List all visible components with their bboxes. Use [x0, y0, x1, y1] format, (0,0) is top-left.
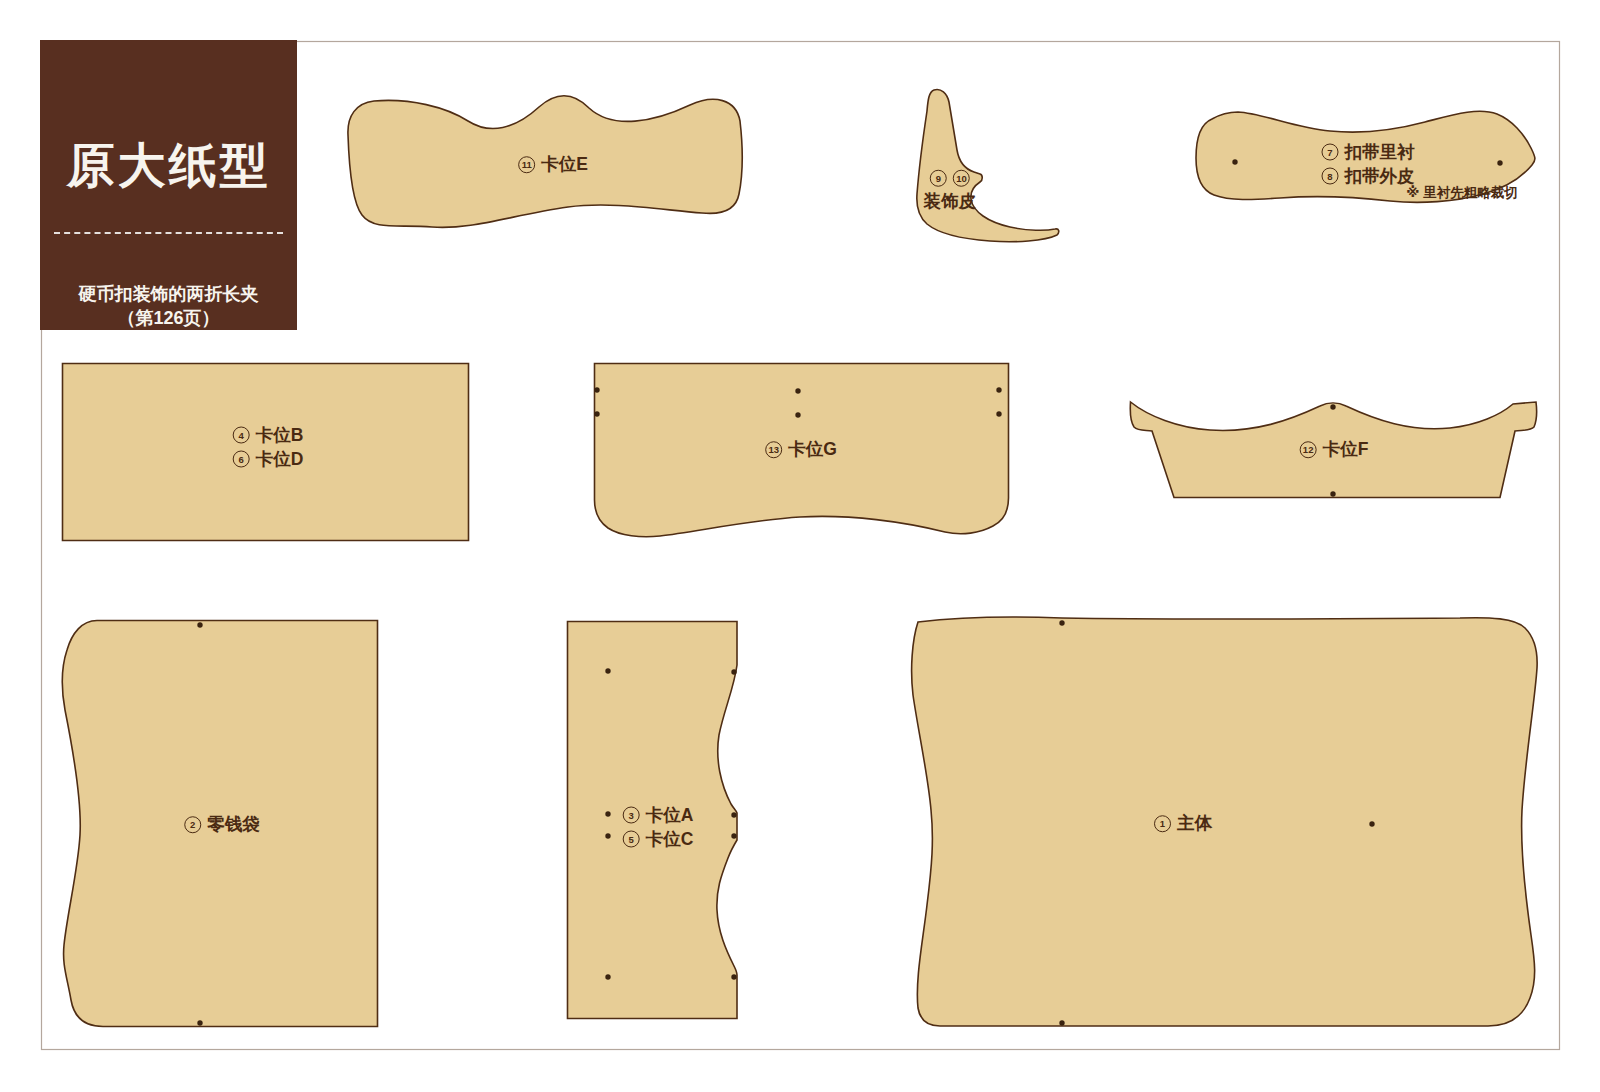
- piece-name: 卡位E: [541, 156, 588, 174]
- label-row: 装饰皮: [924, 193, 977, 211]
- circled-number-icon: 1: [1154, 816, 1171, 833]
- piece-name: 卡位C: [646, 830, 694, 848]
- circled-number-icon: 12: [1300, 442, 1317, 459]
- dashed-divider: [54, 232, 283, 234]
- circled-number-icon: 10: [953, 170, 970, 187]
- piece-name: 卡位A: [646, 807, 694, 825]
- strap-cutting-note: ※ 里衬先粗略裁切: [1406, 184, 1517, 202]
- punch-hole-dot: [1330, 491, 1335, 496]
- piece-name: 零钱袋: [207, 816, 260, 834]
- circled-number-icon: 11: [518, 157, 535, 174]
- label-row: 8 扣带外皮: [1322, 167, 1415, 185]
- label-row: 6 卡位D: [233, 450, 304, 468]
- circled-number-icon: 13: [765, 442, 782, 459]
- pattern-sheet-page: 原大纸型 硬币扣装饰的两折长夹 （第126页） 11 卡位E 9 10 装饰皮 …: [0, 0, 1600, 1092]
- label-strap: 7 扣带里衬 8 扣带外皮: [1322, 144, 1415, 185]
- label-row: 9 10: [930, 170, 970, 187]
- punch-hole-dot: [731, 833, 736, 838]
- project-name: 硬币扣装饰的两折长夹: [40, 282, 297, 306]
- label-decor-leather: 9 10 装饰皮: [924, 170, 977, 211]
- piece-name: 装饰皮: [924, 193, 977, 211]
- label-card-slot-f: 12 卡位F: [1300, 441, 1369, 459]
- circled-number-icon: 9: [930, 170, 947, 187]
- punch-hole-dot: [795, 412, 800, 417]
- label-row: 13 卡位G: [765, 441, 837, 459]
- label-row: 3 卡位A: [623, 807, 694, 825]
- punch-hole-dot: [594, 387, 599, 392]
- page-reference: （第126页）: [40, 306, 297, 330]
- punch-hole-dot: [594, 411, 599, 416]
- label-row: 7 扣带里衬: [1322, 144, 1415, 162]
- page-title: 原大纸型: [40, 134, 297, 198]
- punch-hole-dot: [795, 388, 800, 393]
- circled-number-icon: 7: [1322, 144, 1339, 161]
- piece-name: 卡位D: [256, 450, 304, 468]
- label-row: 11 卡位E: [518, 156, 588, 174]
- punch-hole-dot: [605, 974, 610, 979]
- piece-main-body-shape: [912, 617, 1538, 1026]
- punch-hole-dot: [1497, 160, 1502, 165]
- label-card-slot-g: 13 卡位G: [765, 441, 837, 459]
- label-coin-pocket: 2 零钱袋: [184, 816, 260, 834]
- piece-name: 扣带外皮: [1345, 167, 1415, 185]
- piece-name: 卡位G: [788, 441, 837, 459]
- circled-number-icon: 3: [623, 807, 640, 824]
- punch-hole-dot: [1330, 404, 1335, 409]
- label-row: 12 卡位F: [1300, 441, 1369, 459]
- label-row: 5 卡位C: [623, 830, 694, 848]
- punch-hole-dot: [996, 387, 1001, 392]
- punch-hole-dot: [605, 833, 610, 838]
- circled-number-icon: 4: [233, 427, 250, 444]
- punch-hole-dot: [197, 1020, 202, 1025]
- label-card-slots-ac: 3 卡位A 5 卡位C: [623, 807, 694, 848]
- punch-hole-dot: [605, 668, 610, 673]
- piece-name: 卡位B: [256, 427, 304, 445]
- punch-hole-dot: [1232, 159, 1237, 164]
- circled-number-icon: 5: [623, 830, 640, 847]
- header-box: 原大纸型 硬币扣装饰的两折长夹 （第126页）: [40, 40, 297, 330]
- punch-hole-dot: [996, 411, 1001, 416]
- piece-decor-leather-shape: [917, 90, 1059, 242]
- piece-name: 主体: [1177, 815, 1212, 833]
- punch-hole-dot: [1059, 620, 1064, 625]
- label-main-body: 1 主体: [1154, 815, 1212, 833]
- punch-hole-dot: [731, 812, 736, 817]
- circled-number-icon: 6: [233, 450, 250, 467]
- label-row: 2 零钱袋: [184, 816, 260, 834]
- punch-hole-dot: [1369, 821, 1374, 826]
- circled-number-icon: 8: [1322, 167, 1339, 184]
- label-card-slots-bd: 4 卡位B 6 卡位D: [233, 427, 304, 468]
- punch-hole-dot: [197, 622, 202, 627]
- punch-hole-dot: [1059, 1020, 1064, 1025]
- label-row: 1 主体: [1154, 815, 1212, 833]
- punch-hole-dot: [731, 974, 736, 979]
- label-row: 4 卡位B: [233, 427, 304, 445]
- circled-number-icon: 2: [184, 817, 201, 834]
- label-card-slot-e: 11 卡位E: [518, 156, 588, 174]
- punch-hole-dot: [605, 811, 610, 816]
- piece-name: 扣带里衬: [1345, 144, 1415, 162]
- punch-hole-dot: [731, 669, 736, 674]
- piece-name: 卡位F: [1323, 441, 1369, 459]
